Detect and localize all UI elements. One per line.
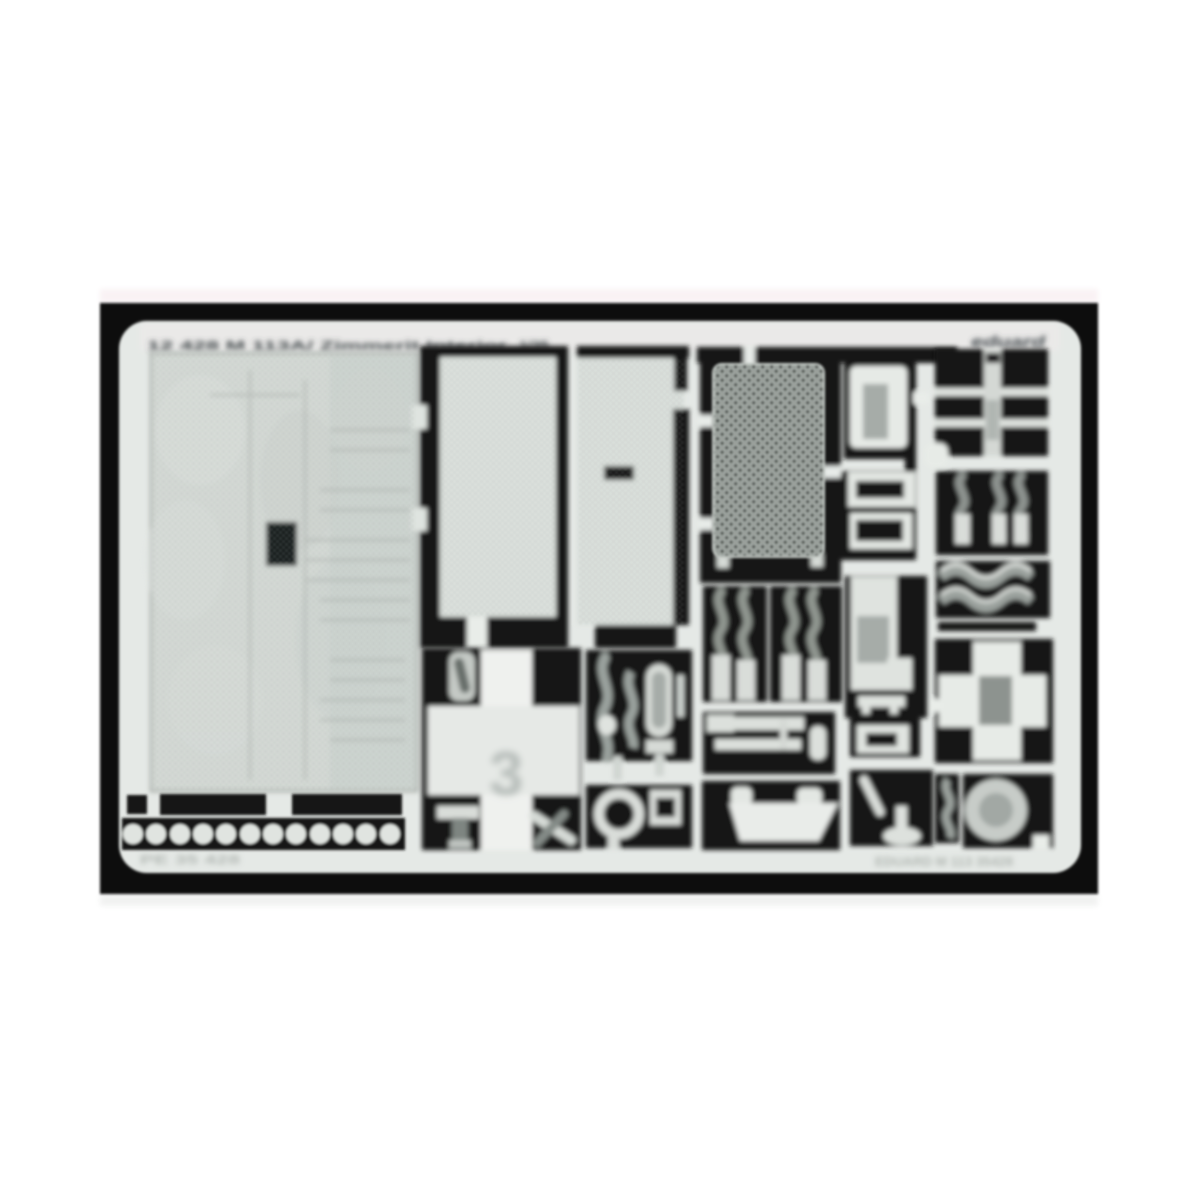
svg-text:EDUARD M 113 35428: EDUARD M 113 35428 xyxy=(875,854,1013,869)
svg-text:3: 3 xyxy=(489,740,523,809)
svg-text:eduard: eduard xyxy=(971,334,1047,351)
svg-text:PE 35 428: PE 35 428 xyxy=(140,852,240,867)
